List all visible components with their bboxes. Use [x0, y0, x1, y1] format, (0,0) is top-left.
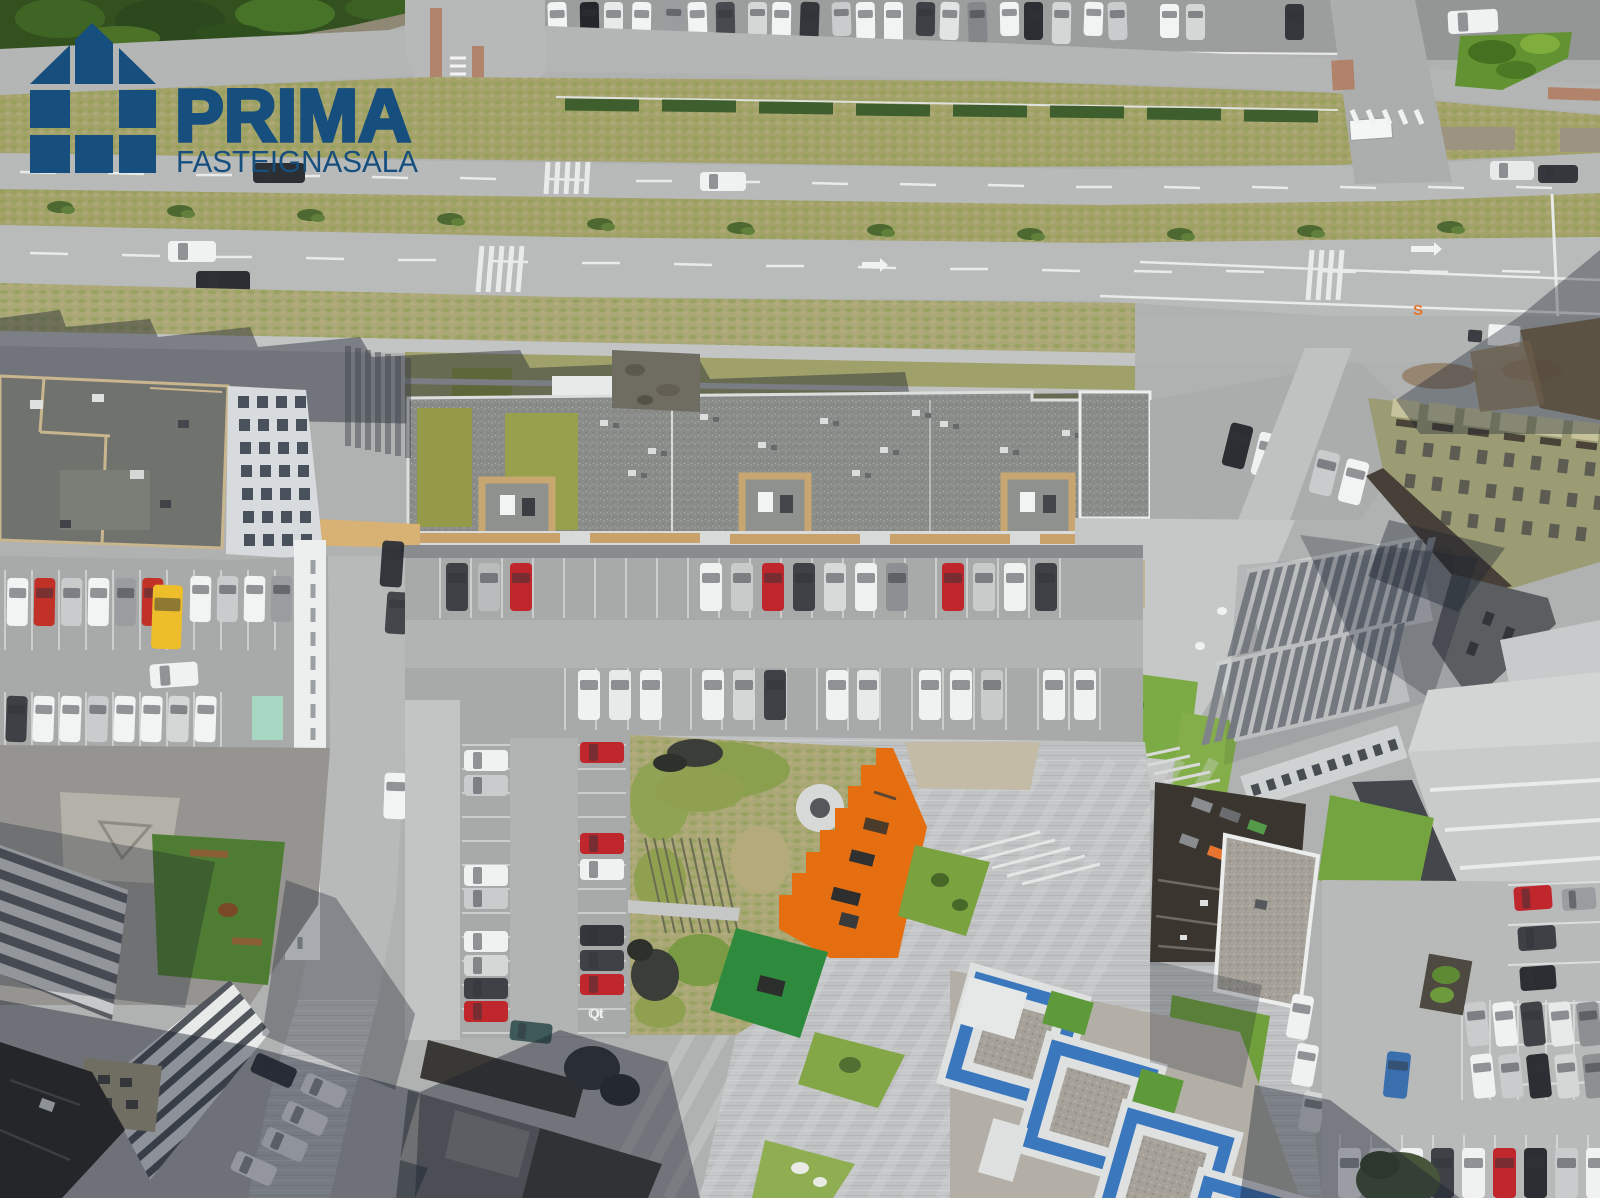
svg-text:FASTEIGNASALA: FASTEIGNASALA [176, 144, 418, 179]
svg-text:Qt: Qt [588, 1005, 603, 1021]
